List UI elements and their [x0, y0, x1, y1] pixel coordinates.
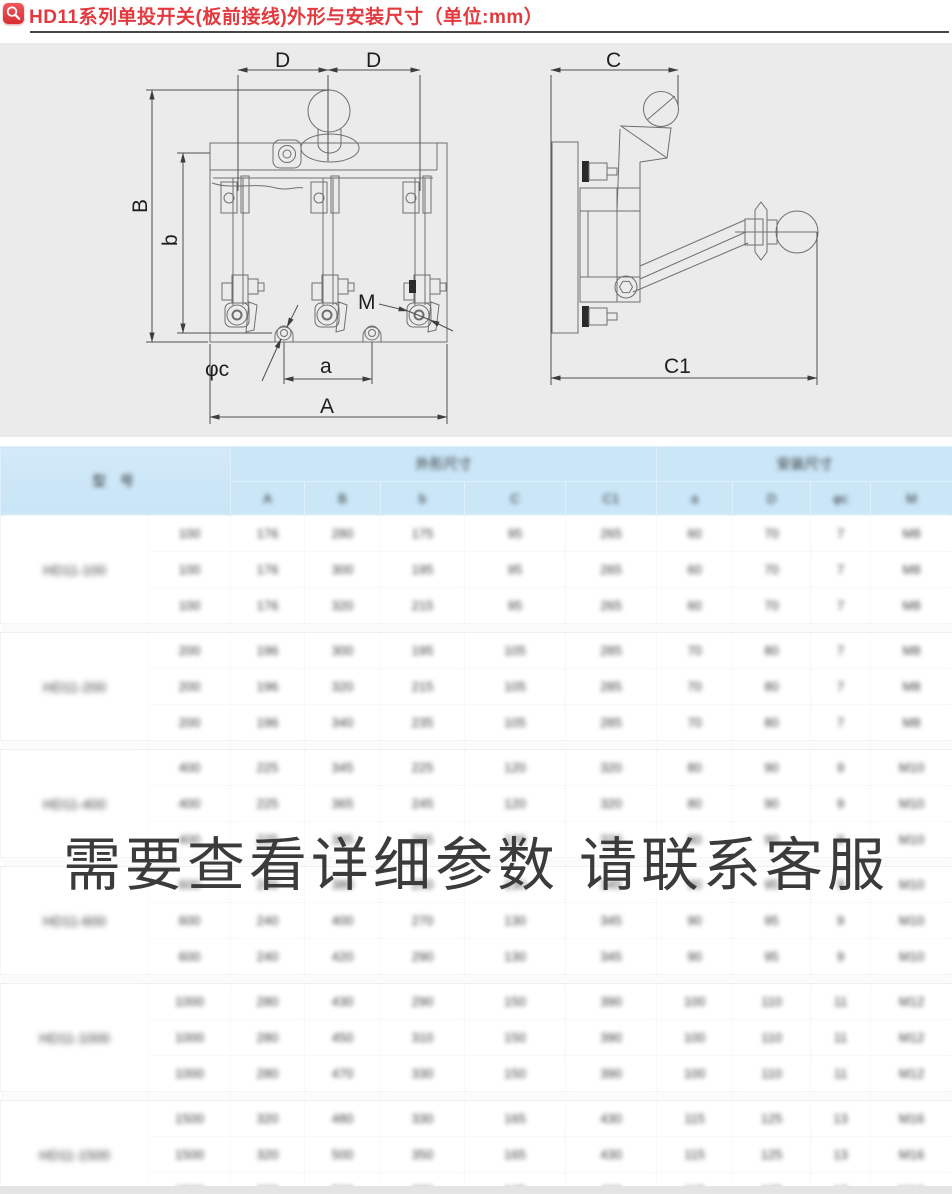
value-cell: 200: [149, 633, 231, 669]
dim-label-C1: C1: [664, 355, 691, 378]
value-cell: 345: [566, 867, 657, 903]
value-cell: M8: [871, 552, 952, 588]
value-cell: 90: [657, 939, 733, 975]
value-cell: 215: [381, 588, 465, 624]
section-title: HD11系列单投开关(板前接线)外形与安装尺寸（单位:mm）: [29, 2, 543, 29]
value-cell: 60: [657, 516, 733, 552]
title-underline: [30, 31, 949, 33]
product-dimension-section: HD11系列单投开关(板前接线)外形与安装尺寸（单位:mm）: [0, 0, 952, 1194]
value-cell: 9: [811, 786, 871, 822]
value-cell: 130: [465, 867, 566, 903]
value-cell: 125: [733, 1101, 811, 1137]
value-cell: 390: [566, 1056, 657, 1092]
value-cell: 95: [465, 588, 566, 624]
value-cell: 100: [149, 552, 231, 588]
value-cell: 240: [231, 903, 305, 939]
value-cell: 176: [231, 588, 305, 624]
value-cell: 11: [811, 984, 871, 1020]
value-cell: 320: [566, 822, 657, 858]
value-cell: 270: [381, 903, 465, 939]
table-row: HD11-60060024038025013034590959M10: [1, 867, 952, 903]
value-cell: 320: [566, 786, 657, 822]
table-header: 型 号 外形尺寸 安装尺寸 A B b C C1 a D φc M: [1, 447, 952, 516]
value-cell: 285: [566, 705, 657, 741]
header-col-C1: C1: [566, 482, 657, 516]
value-cell: 90: [733, 786, 811, 822]
dim-label-b: b: [159, 234, 182, 246]
pole-assembly-3: [403, 176, 446, 332]
value-cell: 265: [566, 552, 657, 588]
side-view: [552, 92, 818, 334]
value-cell: 90: [733, 822, 811, 858]
value-cell: 100: [657, 984, 733, 1020]
value-cell: M10: [871, 822, 952, 858]
model-cell: HD11-600: [1, 867, 149, 975]
value-cell: 70: [733, 552, 811, 588]
value-cell: 430: [305, 984, 381, 1020]
value-cell: 390: [566, 1020, 657, 1056]
group-separator: [1, 1092, 952, 1101]
dim-label-B: B: [129, 199, 152, 213]
value-cell: 11: [811, 1020, 871, 1056]
header-col-a: a: [657, 482, 733, 516]
value-cell: 9: [811, 867, 871, 903]
header-group-outline: 外形尺寸: [231, 447, 657, 482]
value-cell: 95: [733, 867, 811, 903]
value-cell: 330: [381, 1101, 465, 1137]
value-cell: 225: [231, 822, 305, 858]
value-cell: 130: [465, 903, 566, 939]
value-cell: 290: [381, 984, 465, 1020]
value-cell: 100: [657, 1020, 733, 1056]
value-cell: 430: [566, 1137, 657, 1173]
value-cell: 9: [811, 822, 871, 858]
value-cell: 365: [305, 786, 381, 822]
value-cell: 100: [657, 1056, 733, 1092]
group-separator: [1, 858, 952, 867]
dim-label-a: a: [320, 355, 332, 378]
model-cell: HD11-400: [1, 750, 149, 858]
value-cell: 7: [811, 552, 871, 588]
value-cell: 200: [149, 669, 231, 705]
value-cell: 225: [381, 750, 465, 786]
header-col-phi-c: φc: [811, 482, 871, 516]
value-cell: 600: [149, 867, 231, 903]
value-cell: 80: [733, 705, 811, 741]
value-cell: 11: [811, 1056, 871, 1092]
value-cell: M16: [871, 1137, 952, 1173]
value-cell: 290: [381, 939, 465, 975]
value-cell: 7: [811, 633, 871, 669]
value-cell: 95: [733, 939, 811, 975]
value-cell: 60: [657, 588, 733, 624]
value-cell: 345: [566, 903, 657, 939]
value-cell: 430: [566, 1101, 657, 1137]
value-cell: 1000: [149, 984, 231, 1020]
value-cell: 1500: [149, 1101, 231, 1137]
value-cell: 70: [657, 705, 733, 741]
value-cell: 176: [231, 552, 305, 588]
value-cell: 115: [657, 1101, 733, 1137]
value-cell: 9: [811, 939, 871, 975]
value-cell: 265: [566, 516, 657, 552]
value-cell: 345: [305, 750, 381, 786]
value-cell: 100: [149, 588, 231, 624]
value-cell: 1500: [149, 1137, 231, 1173]
value-cell: 110: [733, 1020, 811, 1056]
value-cell: 60: [657, 552, 733, 588]
header-col-b: b: [381, 482, 465, 516]
value-cell: 80: [733, 633, 811, 669]
value-cell: 600: [149, 903, 231, 939]
value-cell: 280: [231, 1020, 305, 1056]
value-cell: 320: [231, 1137, 305, 1173]
value-cell: 400: [149, 786, 231, 822]
value-cell: 215: [381, 669, 465, 705]
value-cell: 115: [657, 1137, 733, 1173]
value-cell: 340: [305, 705, 381, 741]
dim-label-M: M: [358, 291, 376, 314]
value-cell: 320: [231, 1101, 305, 1137]
value-cell: 70: [733, 516, 811, 552]
header-model: 型 号: [1, 447, 231, 516]
value-cell: 7: [811, 516, 871, 552]
table-row: HD11-40040022534522512032080909M10: [1, 750, 952, 786]
value-cell: 350: [381, 1137, 465, 1173]
value-cell: 400: [149, 822, 231, 858]
table-row: HD11-20020019630019510528570807M8: [1, 633, 952, 669]
value-cell: 13: [811, 1137, 871, 1173]
value-cell: 95: [733, 903, 811, 939]
value-cell: 100: [149, 516, 231, 552]
dim-label-A: A: [320, 395, 334, 418]
header-col-M: M: [871, 482, 952, 516]
value-cell: 130: [465, 939, 566, 975]
value-cell: 80: [657, 822, 733, 858]
pole-assembly-2: [311, 176, 354, 332]
value-cell: 320: [566, 750, 657, 786]
value-cell: 196: [231, 669, 305, 705]
header-col-D: D: [733, 482, 811, 516]
table-body: HD11-1001001762801759526560707M810017630…: [1, 516, 952, 1194]
group-separator: [1, 624, 952, 633]
value-cell: 9: [811, 903, 871, 939]
bottom-cutoff-strip: [0, 1186, 952, 1194]
dim-label-C: C: [606, 49, 621, 72]
value-cell: 450: [305, 1020, 381, 1056]
value-cell: 90: [657, 903, 733, 939]
value-cell: 285: [566, 669, 657, 705]
value-cell: 120: [465, 822, 566, 858]
value-cell: 600: [149, 939, 231, 975]
value-cell: M8: [871, 669, 952, 705]
value-cell: M8: [871, 705, 952, 741]
value-cell: 80: [657, 750, 733, 786]
value-cell: M12: [871, 1020, 952, 1056]
table-row: HD11-1500150032048033016543011512513M16: [1, 1101, 952, 1137]
value-cell: 80: [657, 786, 733, 822]
value-cell: 195: [381, 633, 465, 669]
value-cell: 235: [381, 705, 465, 741]
value-cell: 400: [305, 903, 381, 939]
value-cell: 13: [811, 1101, 871, 1137]
value-cell: M12: [871, 984, 952, 1020]
value-cell: 420: [305, 939, 381, 975]
value-cell: 265: [566, 588, 657, 624]
header-col-B: B: [305, 482, 381, 516]
value-cell: 195: [381, 552, 465, 588]
value-cell: M12: [871, 1056, 952, 1092]
value-cell: 70: [657, 669, 733, 705]
value-cell: 285: [566, 633, 657, 669]
value-cell: 110: [733, 984, 811, 1020]
value-cell: 80: [733, 669, 811, 705]
value-cell: 175: [381, 516, 465, 552]
dimension-labels: D D B b M φc a A C C1: [129, 49, 691, 418]
value-cell: 245: [381, 786, 465, 822]
value-cell: M10: [871, 750, 952, 786]
value-cell: M16: [871, 1101, 952, 1137]
pole-assembly-1: [221, 176, 264, 332]
value-cell: 385: [305, 822, 381, 858]
value-cell: 150: [465, 1056, 566, 1092]
value-cell: M8: [871, 588, 952, 624]
value-cell: 310: [381, 1020, 465, 1056]
value-cell: 70: [657, 633, 733, 669]
dim-label-D-left: D: [275, 49, 290, 72]
value-cell: 330: [381, 1056, 465, 1092]
value-cell: 240: [231, 867, 305, 903]
value-cell: 345: [566, 939, 657, 975]
value-cell: 165: [465, 1101, 566, 1137]
value-cell: M10: [871, 786, 952, 822]
value-cell: 470: [305, 1056, 381, 1092]
value-cell: M10: [871, 939, 952, 975]
value-cell: 105: [465, 633, 566, 669]
value-cell: 250: [381, 867, 465, 903]
header-col-A: A: [231, 482, 305, 516]
model-cell: HD11-200: [1, 633, 149, 741]
value-cell: 280: [231, 1056, 305, 1092]
value-cell: 265: [381, 822, 465, 858]
header-col-C: C: [465, 482, 566, 516]
value-cell: 105: [465, 669, 566, 705]
value-cell: 7: [811, 669, 871, 705]
section-titlebar: HD11系列单投开关(板前接线)外形与安装尺寸（单位:mm）: [0, 0, 952, 43]
value-cell: 280: [231, 984, 305, 1020]
value-cell: 200: [149, 705, 231, 741]
value-cell: 9: [811, 750, 871, 786]
value-cell: 320: [305, 669, 381, 705]
dimension-drawing: D D B b M φc a A C C1: [0, 43, 952, 437]
model-cell: HD11-100: [1, 516, 149, 624]
model-cell: HD11-1500: [1, 1101, 149, 1194]
value-cell: 380: [305, 867, 381, 903]
front-view-dimensions: [146, 70, 453, 424]
value-cell: 225: [231, 750, 305, 786]
value-cell: 196: [231, 705, 305, 741]
value-cell: 150: [465, 984, 566, 1020]
value-cell: 7: [811, 588, 871, 624]
value-cell: M10: [871, 867, 952, 903]
value-cell: 70: [733, 588, 811, 624]
magnifier-icon: [3, 3, 24, 24]
value-cell: 320: [305, 588, 381, 624]
header-group-mounting: 安装尺寸: [657, 447, 952, 482]
table-row: HD11-1000100028043029015039010011011M12: [1, 984, 952, 1020]
value-cell: 165: [465, 1137, 566, 1173]
value-cell: 1000: [149, 1056, 231, 1092]
value-cell: 105: [465, 705, 566, 741]
model-cell: HD11-1000: [1, 984, 149, 1092]
value-cell: 90: [657, 867, 733, 903]
value-cell: 300: [305, 552, 381, 588]
dim-label-phi-c: φc: [205, 358, 229, 381]
value-cell: M8: [871, 633, 952, 669]
table-row: HD11-1001001762801759526560707M8: [1, 516, 952, 552]
value-cell: 150: [465, 1020, 566, 1056]
dimension-table: 型 号 外形尺寸 安装尺寸 A B b C C1 a D φc M HD11-1…: [0, 446, 952, 1194]
value-cell: 400: [149, 750, 231, 786]
value-cell: 390: [566, 984, 657, 1020]
group-separator: [1, 975, 952, 984]
value-cell: M8: [871, 516, 952, 552]
value-cell: 95: [465, 516, 566, 552]
value-cell: 125: [733, 1137, 811, 1173]
value-cell: 196: [231, 633, 305, 669]
value-cell: 300: [305, 633, 381, 669]
value-cell: 7: [811, 705, 871, 741]
value-cell: 120: [465, 750, 566, 786]
value-cell: 95: [465, 552, 566, 588]
value-cell: 176: [231, 516, 305, 552]
value-cell: 480: [305, 1101, 381, 1137]
value-cell: 120: [465, 786, 566, 822]
value-cell: 110: [733, 1056, 811, 1092]
dim-label-D-right: D: [366, 49, 381, 72]
group-separator: [1, 741, 952, 750]
value-cell: 1000: [149, 1020, 231, 1056]
value-cell: M10: [871, 903, 952, 939]
value-cell: 90: [733, 750, 811, 786]
value-cell: 225: [231, 786, 305, 822]
value-cell: 500: [305, 1137, 381, 1173]
value-cell: 280: [305, 516, 381, 552]
value-cell: 240: [231, 939, 305, 975]
